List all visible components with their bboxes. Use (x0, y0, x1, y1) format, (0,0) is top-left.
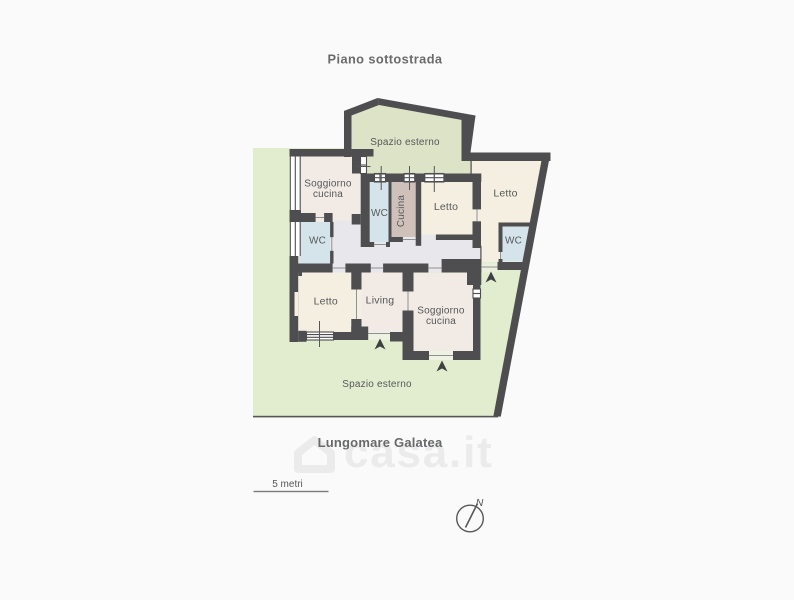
svg-text:WC: WC (371, 208, 388, 219)
svg-text:Soggiorno: Soggiorno (304, 179, 352, 190)
svg-text:Letto: Letto (314, 296, 338, 308)
svg-text:Lungomare Galatea: Lungomare Galatea (318, 435, 443, 450)
svg-text:cucina: cucina (313, 189, 343, 200)
svg-text:Soggiorno: Soggiorno (417, 306, 465, 317)
svg-text:cucina: cucina (426, 316, 456, 327)
svg-text:Letto: Letto (434, 201, 458, 213)
svg-text:Living: Living (366, 295, 395, 307)
svg-text:WC: WC (505, 236, 522, 247)
svg-text:N: N (476, 497, 484, 509)
svg-text:Cucina: Cucina (396, 195, 407, 228)
svg-text:Spazio esterno: Spazio esterno (342, 379, 412, 390)
svg-text:WC: WC (309, 236, 326, 247)
svg-text:Piano sottostrada: Piano sottostrada (328, 52, 443, 67)
svg-text:Spazio esterno: Spazio esterno (370, 137, 440, 148)
svg-text:5 metri: 5 metri (272, 479, 303, 490)
svg-text:Letto: Letto (493, 188, 517, 200)
